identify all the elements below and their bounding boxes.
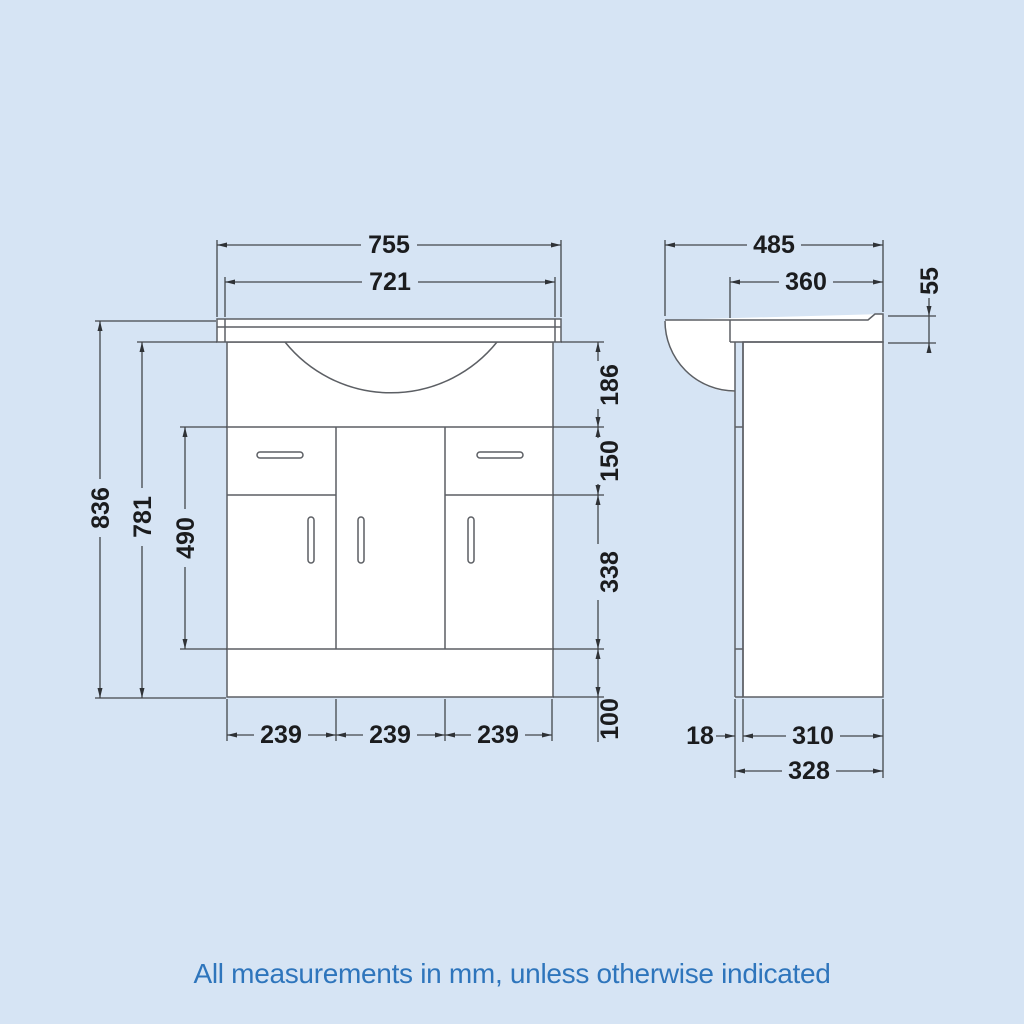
front-view: 755 721 836 781 [87,231,624,749]
dim-label-490: 490 [172,517,200,559]
dim-label-360: 360 [785,268,827,296]
dimension-worktop-height: 55 [888,267,944,352]
dim-label-755: 755 [368,231,410,259]
dim-label-338: 338 [596,551,624,593]
measurement-note: All measurements in mm, unless otherwise… [0,958,1024,990]
dim-label-239-center: 239 [369,721,411,749]
drawer-handle-left [257,452,303,458]
dimension-overall-depth: 485 [665,231,883,316]
dim-label-150: 150 [596,440,624,482]
dimension-top-depth: 360 [730,268,883,318]
dim-label-18: 18 [686,722,714,750]
front-cabinet-body [227,342,553,697]
front-countertop [217,319,561,342]
side-view: 485 360 55 18 31 [665,231,944,785]
dimension-front-panel-height: 490 [172,427,227,649]
dim-label-781: 781 [129,496,157,538]
door-handle-left [308,517,314,563]
dim-label-239-left: 239 [260,721,302,749]
dimension-right-stack: 186 150 338 100 [553,342,624,742]
dimension-side-bottom: 18 310 328 [686,699,883,785]
side-cabinet-body [743,342,883,697]
dim-label-836: 836 [87,487,115,529]
door-handle-center [358,517,364,563]
dimension-inner-width: 721 [225,268,555,317]
dim-label-55: 55 [916,267,944,295]
drawer-handle-right [477,452,523,458]
dim-label-100: 100 [596,698,624,740]
dim-label-328: 328 [788,757,830,785]
dim-label-485: 485 [753,231,795,259]
door-handle-right [468,517,474,563]
dim-label-310: 310 [792,722,834,750]
dim-label-721: 721 [369,268,411,296]
dim-label-186: 186 [596,364,624,406]
technical-drawing: 755 721 836 781 [0,0,1024,1024]
dim-label-239-right: 239 [477,721,519,749]
dimension-panel-widths: 239 239 239 [227,699,552,749]
